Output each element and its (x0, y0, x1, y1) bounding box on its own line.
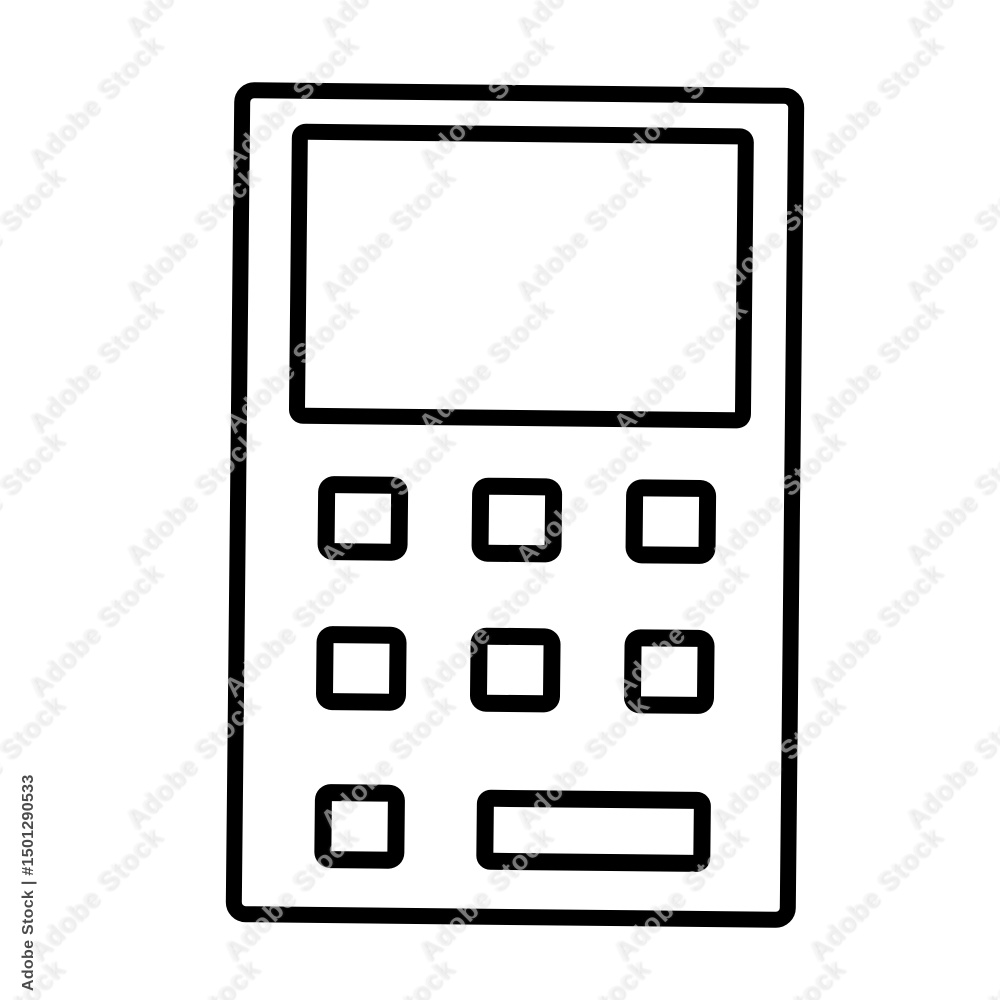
calculator-button-r2c1 (316, 626, 407, 711)
stock-id-label: Adobe Stock | #1501290533 (20, 774, 38, 991)
calculator-button-r2c2 (470, 628, 561, 713)
calculator-button-r1c3 (625, 479, 716, 564)
calculator-button-r1c1 (317, 476, 408, 561)
stock-image-canvas: Adobe StockAdobe StockAdobe StockAdobe S… (0, 0, 1000, 1000)
calculator-button-r3c1 (314, 784, 405, 869)
calculator-icon (0, 0, 1000, 1000)
calculator-button-wide (476, 790, 711, 872)
calculator-button-r2c3 (624, 629, 715, 714)
calculator-button-r1c2 (471, 478, 562, 563)
calculator-display (289, 124, 754, 429)
